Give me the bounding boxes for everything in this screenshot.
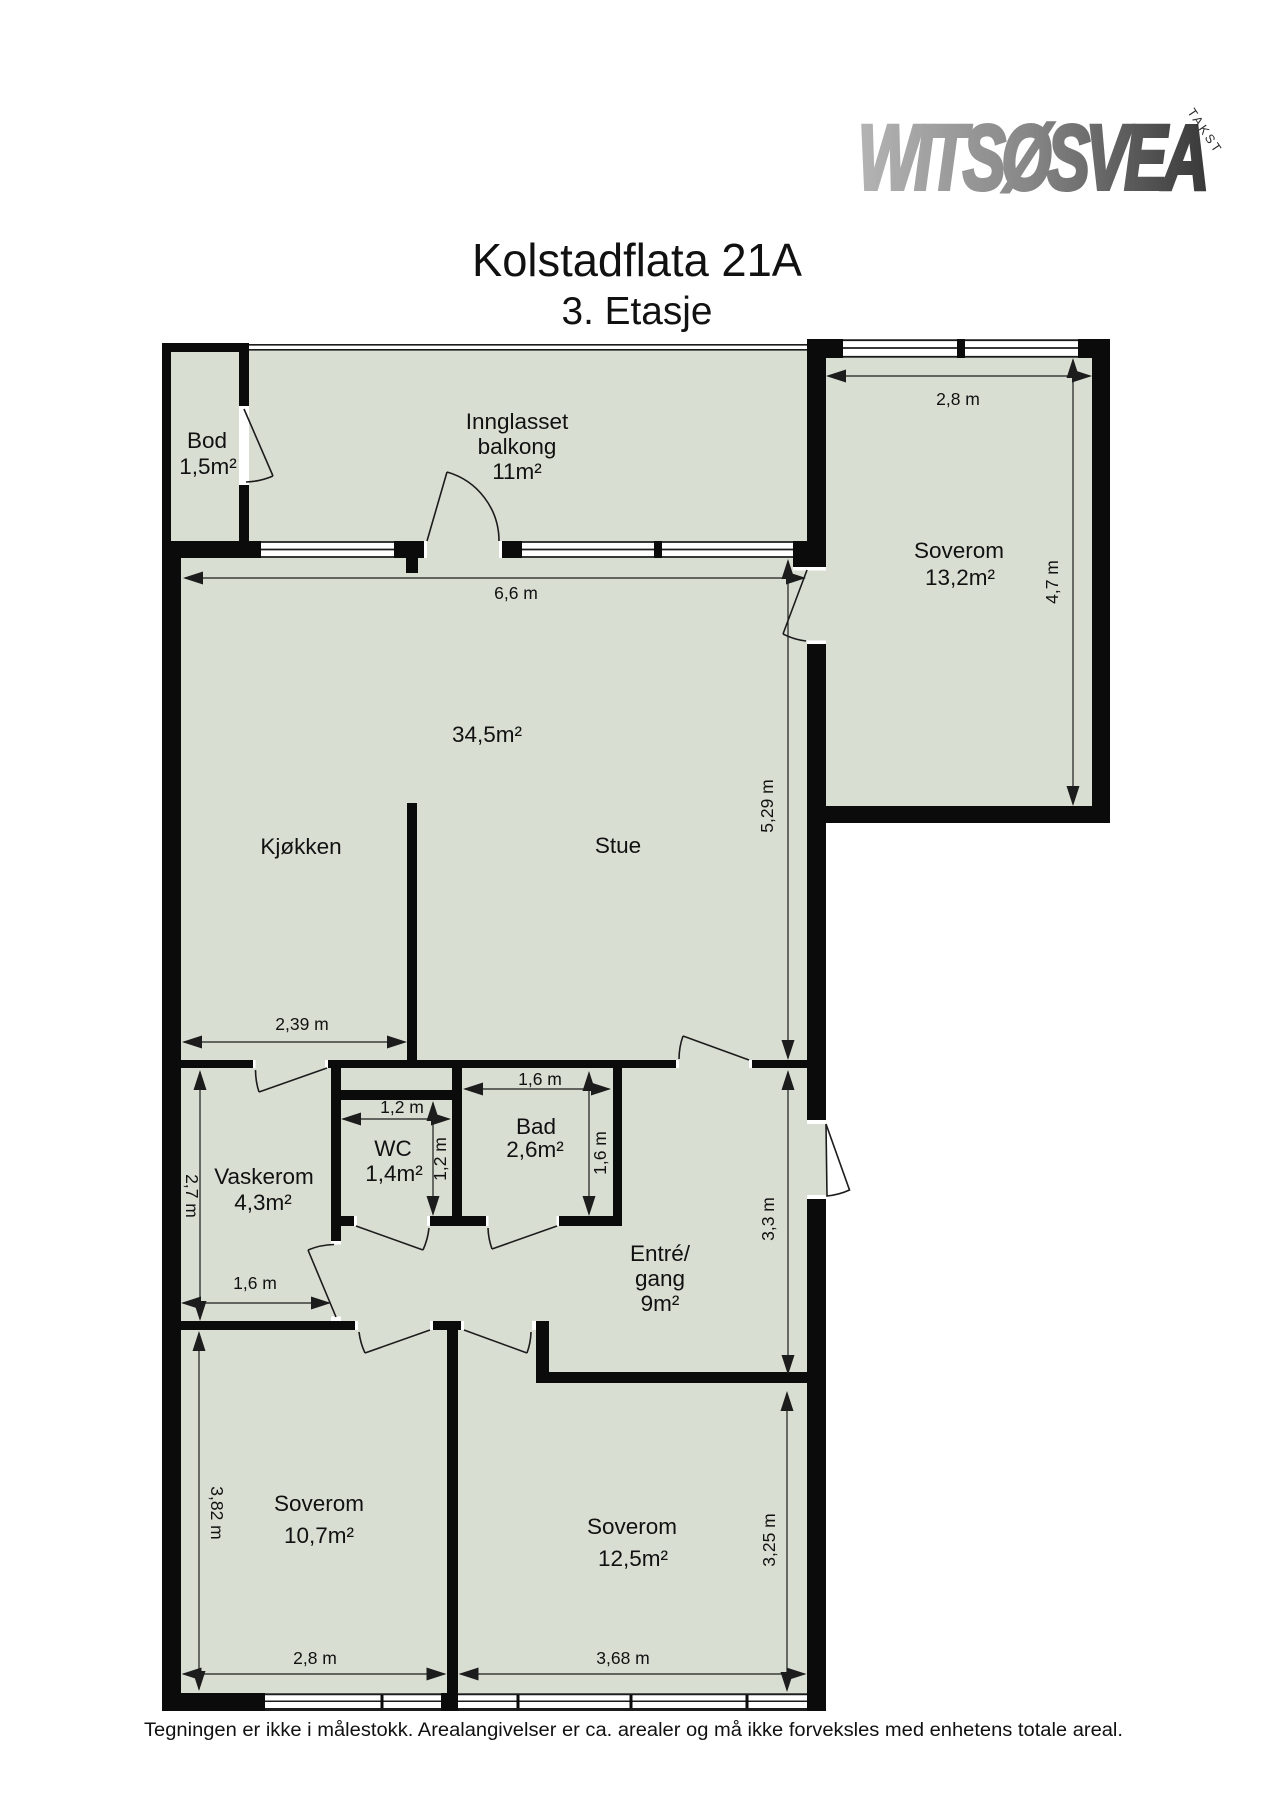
svg-text:4,7 m: 4,7 m: [1042, 560, 1062, 604]
svg-text:Entré/: Entré/: [630, 1241, 691, 1266]
svg-text:3,25 m: 3,25 m: [759, 1513, 779, 1567]
svg-text:5,29 m: 5,29 m: [757, 779, 777, 833]
svg-text:1,2 m: 1,2 m: [380, 1097, 424, 1117]
svg-text:3,82 m: 3,82 m: [207, 1486, 227, 1540]
svg-text:Soverom: Soverom: [914, 538, 1004, 563]
svg-text:3,68 m: 3,68 m: [596, 1648, 650, 1668]
svg-text:1,6 m: 1,6 m: [590, 1131, 610, 1175]
svg-text:6,6 m: 6,6 m: [494, 583, 538, 603]
svg-text:4,3m²: 4,3m²: [234, 1190, 292, 1215]
svg-text:Soverom: Soverom: [274, 1491, 364, 1516]
svg-text:13,2m²: 13,2m²: [925, 565, 996, 590]
svg-text:Stue: Stue: [595, 833, 641, 858]
svg-text:Bad: Bad: [516, 1114, 556, 1139]
svg-text:Tegningen er ikke i målestokk.: Tegningen er ikke i målestokk. Arealangi…: [144, 1720, 1123, 1741]
svg-text:1,4m²: 1,4m²: [365, 1161, 423, 1186]
svg-text:1,6 m: 1,6 m: [233, 1273, 277, 1293]
svg-text:3. Etasje: 3. Etasje: [562, 290, 713, 333]
svg-text:Kjøkken: Kjøkken: [260, 834, 341, 859]
svg-text:3,3 m: 3,3 m: [758, 1197, 778, 1241]
svg-text:WITSØSVEA: WITSØSVEA: [858, 107, 1205, 209]
svg-text:WC: WC: [374, 1136, 412, 1161]
svg-text:1,2 m: 1,2 m: [430, 1137, 450, 1181]
svg-text:Kolstadflata 21A: Kolstadflata 21A: [472, 234, 802, 286]
svg-text:balkong: balkong: [478, 434, 557, 459]
svg-text:2,39 m: 2,39 m: [275, 1014, 329, 1034]
svg-text:2,7 m: 2,7 m: [182, 1174, 202, 1218]
svg-text:gang: gang: [635, 1266, 685, 1291]
svg-text:10,7m²: 10,7m²: [284, 1523, 355, 1548]
svg-text:11m²: 11m²: [492, 459, 542, 484]
svg-text:Vaskerom: Vaskerom: [214, 1164, 314, 1189]
svg-text:34,5m²: 34,5m²: [452, 722, 523, 747]
svg-text:1,5m²: 1,5m²: [179, 454, 237, 479]
svg-text:9m²: 9m²: [641, 1291, 680, 1316]
svg-text:Innglasset: Innglasset: [466, 409, 569, 434]
svg-text:2,8 m: 2,8 m: [293, 1648, 337, 1668]
svg-text:12,5m²: 12,5m²: [598, 1546, 669, 1571]
svg-text:Bod: Bod: [187, 428, 227, 453]
svg-text:2,6m²: 2,6m²: [506, 1137, 564, 1162]
svg-text:1,6 m: 1,6 m: [518, 1069, 562, 1089]
svg-text:2,8 m: 2,8 m: [936, 389, 980, 409]
svg-text:Soverom: Soverom: [587, 1514, 677, 1539]
